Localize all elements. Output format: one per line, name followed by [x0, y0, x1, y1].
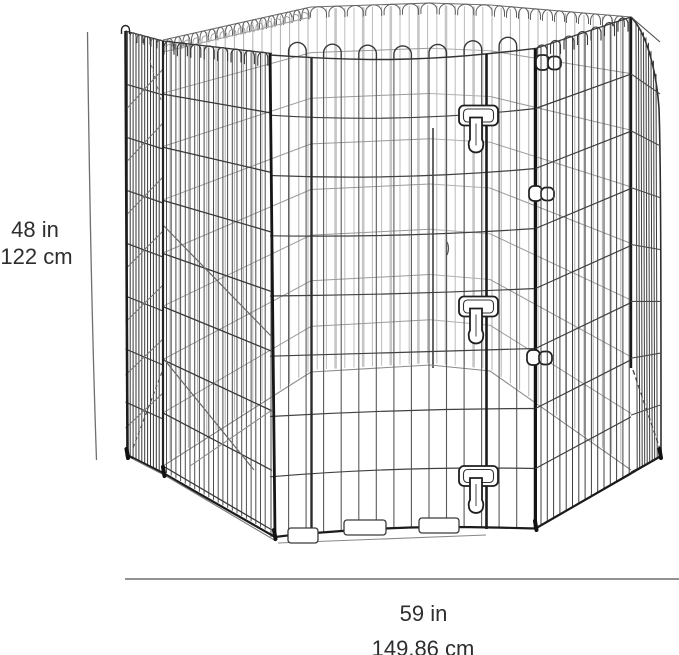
svg-text:122 cm: 122 cm	[0, 244, 72, 269]
svg-text:149.86 cm: 149.86 cm	[372, 636, 475, 655]
svg-text:48 in: 48 in	[11, 217, 59, 242]
svg-text:59 in: 59 in	[400, 601, 448, 626]
